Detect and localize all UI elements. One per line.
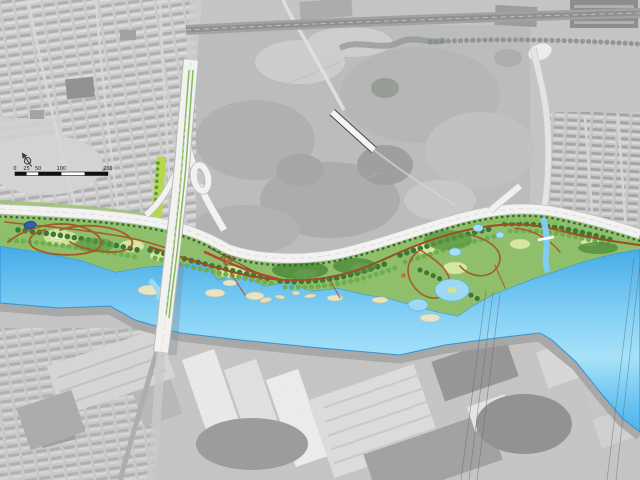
park-channel <box>543 218 548 272</box>
scale-label-100: 100 <box>57 166 67 172</box>
scale-label-50: 50 <box>35 166 41 172</box>
scale-label-200: 200 <box>103 166 113 172</box>
masterplan-map: 0 25 50 100 200 <box>0 0 640 480</box>
scale-label-0: 0 <box>13 166 16 172</box>
scale-label-25: 25 <box>23 166 29 172</box>
